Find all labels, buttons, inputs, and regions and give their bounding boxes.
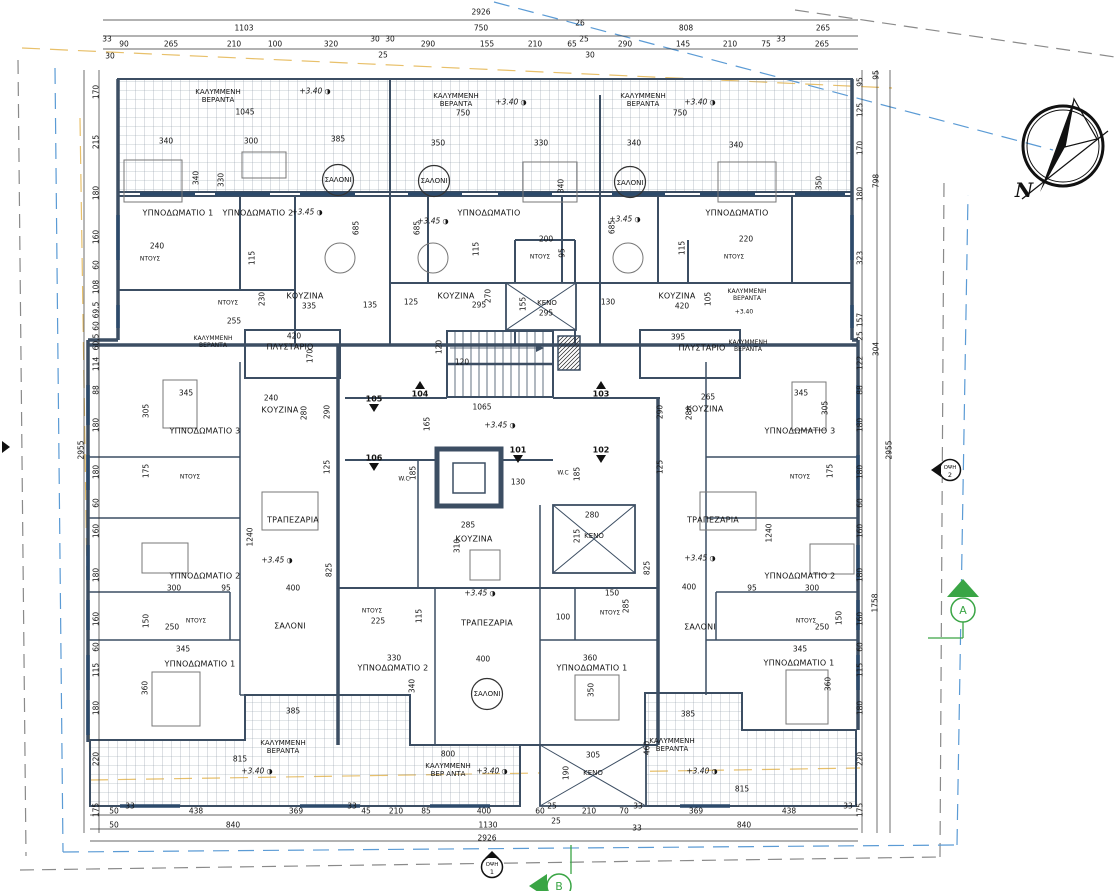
bed: [152, 672, 200, 726]
void-center: [553, 505, 635, 573]
dining-table: [262, 492, 318, 530]
void-top: [506, 283, 576, 330]
veranda-hatch-areas: [90, 79, 856, 806]
round-table: [325, 243, 355, 273]
bed: [163, 380, 197, 428]
svg-text:1: 1: [490, 868, 494, 876]
salon-circles: [323, 165, 646, 710]
svg-text:A: A: [959, 604, 967, 617]
elevation-marker-1: ΟΨΗ 1: [482, 851, 503, 878]
svg-text:B: B: [555, 880, 563, 891]
bed: [810, 544, 854, 574]
duct-shaft: [558, 336, 580, 370]
bed: [142, 543, 188, 573]
bed: [575, 675, 619, 720]
elevation-marker-2: ΟΨΗ 2: [931, 460, 961, 481]
bottom-left-veranda: [90, 695, 520, 806]
left-edge-arrow-icon: [2, 441, 10, 453]
floor-plan-page: N ΟΨΗ 2 ΟΨΗ 1 A B 2926110375: [0, 0, 1116, 891]
svg-text:2: 2: [948, 471, 952, 479]
bottom-right-veranda: [645, 693, 856, 806]
bed: [792, 382, 826, 430]
north-label: N: [1014, 178, 1034, 202]
section-marker-a: A: [928, 579, 979, 638]
top-veranda: [118, 79, 852, 192]
floor-plan-drawing: N ΟΨΗ 2 ΟΨΗ 1 A B: [0, 0, 1116, 891]
staircase: [447, 331, 553, 397]
section-marker-b: B: [529, 845, 571, 891]
bed: [786, 670, 828, 724]
north-arrow-icon: [1022, 99, 1108, 199]
void-bottom: [540, 745, 646, 806]
elevator: [437, 449, 501, 506]
dining-table: [700, 492, 756, 530]
round-table: [613, 243, 643, 273]
table: [470, 550, 500, 580]
round-table: [418, 243, 448, 273]
